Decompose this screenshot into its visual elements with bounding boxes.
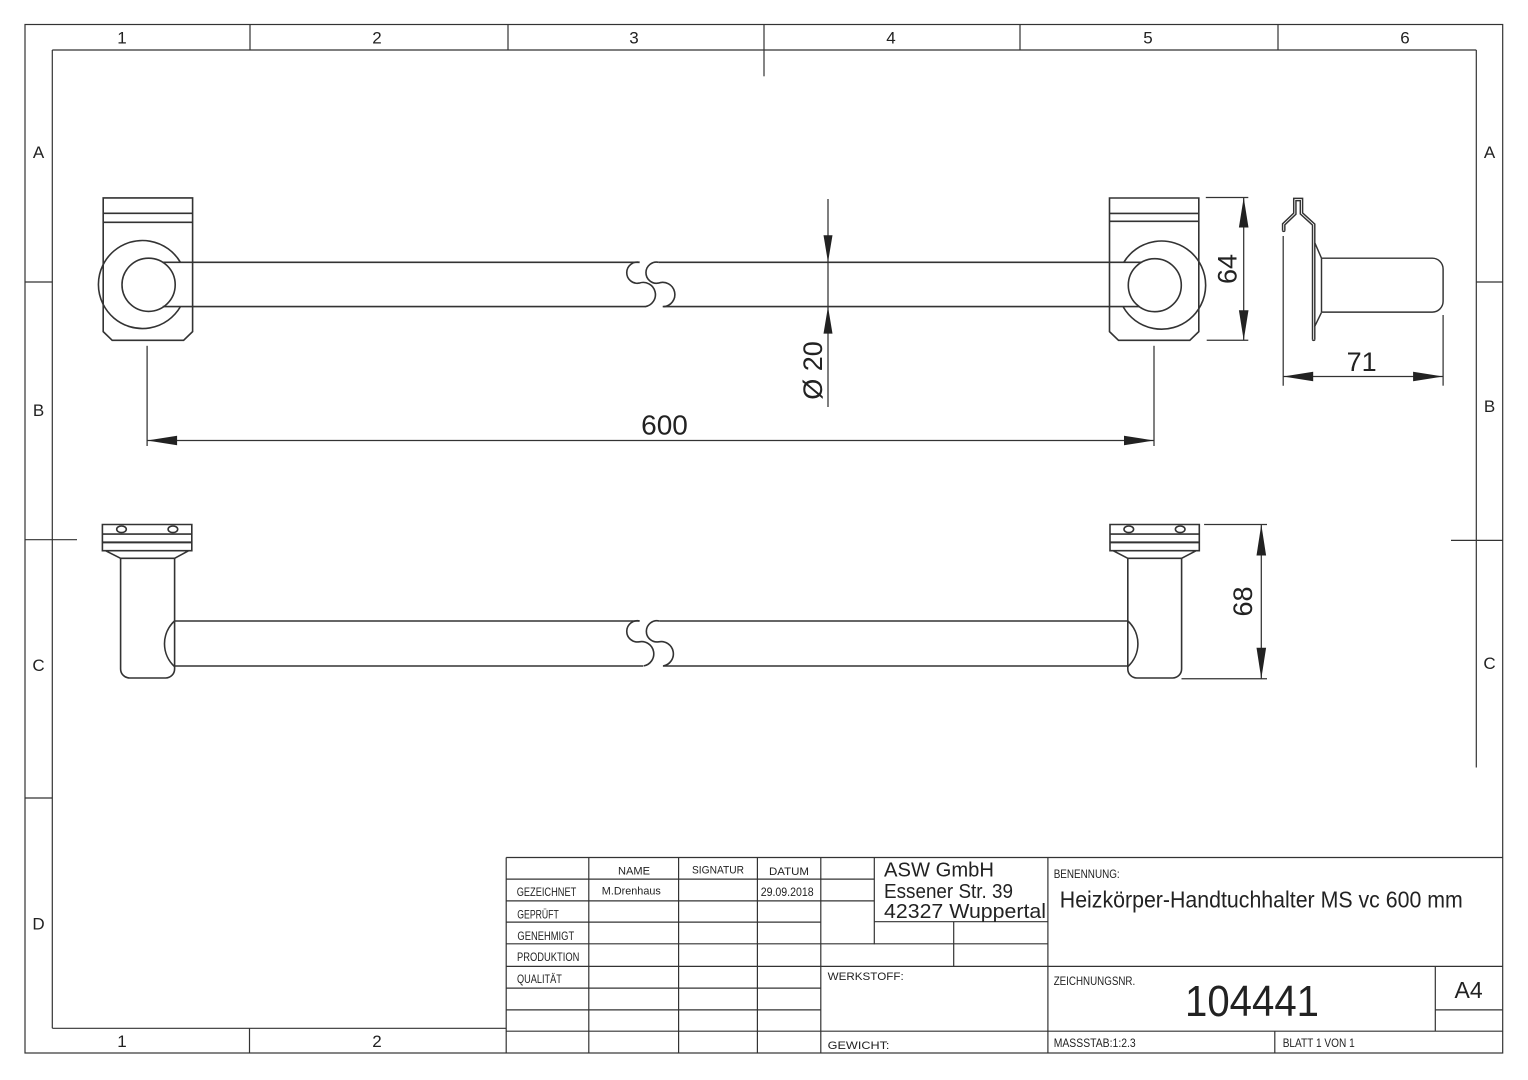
- svg-text:PRODUKTION: PRODUKTION: [517, 950, 579, 964]
- svg-text:DATUM: DATUM: [769, 866, 809, 878]
- svg-text:6: 6: [1400, 29, 1409, 48]
- svg-text:A: A: [1484, 143, 1496, 162]
- svg-text:4: 4: [886, 29, 895, 48]
- svg-text:M.Drenhaus: M.Drenhaus: [602, 886, 661, 898]
- svg-text:C: C: [32, 656, 44, 675]
- svg-text:GEWICHT:: GEWICHT:: [828, 1040, 890, 1052]
- svg-text:A4: A4: [1455, 977, 1483, 1003]
- svg-text:2: 2: [372, 1032, 381, 1051]
- svg-text:B: B: [1484, 397, 1495, 416]
- svg-text:ZEICHNUNGSNR.: ZEICHNUNGSNR.: [1054, 974, 1136, 988]
- svg-text:GENEHMIGT: GENEHMIGT: [517, 929, 574, 943]
- svg-text:64: 64: [1213, 254, 1243, 284]
- svg-text:C: C: [1483, 654, 1495, 673]
- svg-text:B: B: [33, 401, 44, 420]
- svg-text:BENENNUNG:: BENENNUNG:: [1054, 867, 1120, 881]
- svg-text:ASW GmbH: ASW GmbH: [884, 859, 994, 882]
- svg-text:2: 2: [372, 29, 381, 48]
- svg-text:SIGNATUR: SIGNATUR: [692, 865, 744, 877]
- svg-text:42327 Wuppertal: 42327 Wuppertal: [884, 900, 1046, 923]
- svg-text:5: 5: [1143, 29, 1152, 48]
- svg-text:1: 1: [117, 1032, 126, 1051]
- svg-text:600: 600: [641, 409, 688, 440]
- svg-text:NAME: NAME: [618, 866, 650, 878]
- svg-text:GEPRÜFT: GEPRÜFT: [517, 908, 559, 922]
- svg-text:A: A: [33, 143, 45, 162]
- svg-text:GEZEICHNET: GEZEICHNET: [517, 885, 577, 899]
- svg-text:3: 3: [629, 29, 638, 48]
- svg-text:MASSSTAB:1:2.3: MASSSTAB:1:2.3: [1054, 1038, 1136, 1050]
- svg-text:D: D: [32, 915, 44, 934]
- svg-text:104441: 104441: [1185, 977, 1319, 1026]
- svg-text:QUALITÄT: QUALITÄT: [517, 972, 562, 986]
- svg-text:71: 71: [1347, 347, 1377, 377]
- svg-text:WERKSTOFF:: WERKSTOFF:: [828, 971, 904, 983]
- svg-text:Ø 20: Ø 20: [798, 341, 828, 400]
- svg-text:1: 1: [117, 29, 126, 48]
- svg-text:68: 68: [1228, 586, 1258, 616]
- svg-text:BLATT 1 VON 1: BLATT 1 VON 1: [1283, 1038, 1355, 1050]
- svg-text:29.09.2018: 29.09.2018: [761, 887, 814, 899]
- svg-text:Heizkörper-Handtuchhalter MS v: Heizkörper-Handtuchhalter MS vc 600 mm: [1060, 887, 1463, 913]
